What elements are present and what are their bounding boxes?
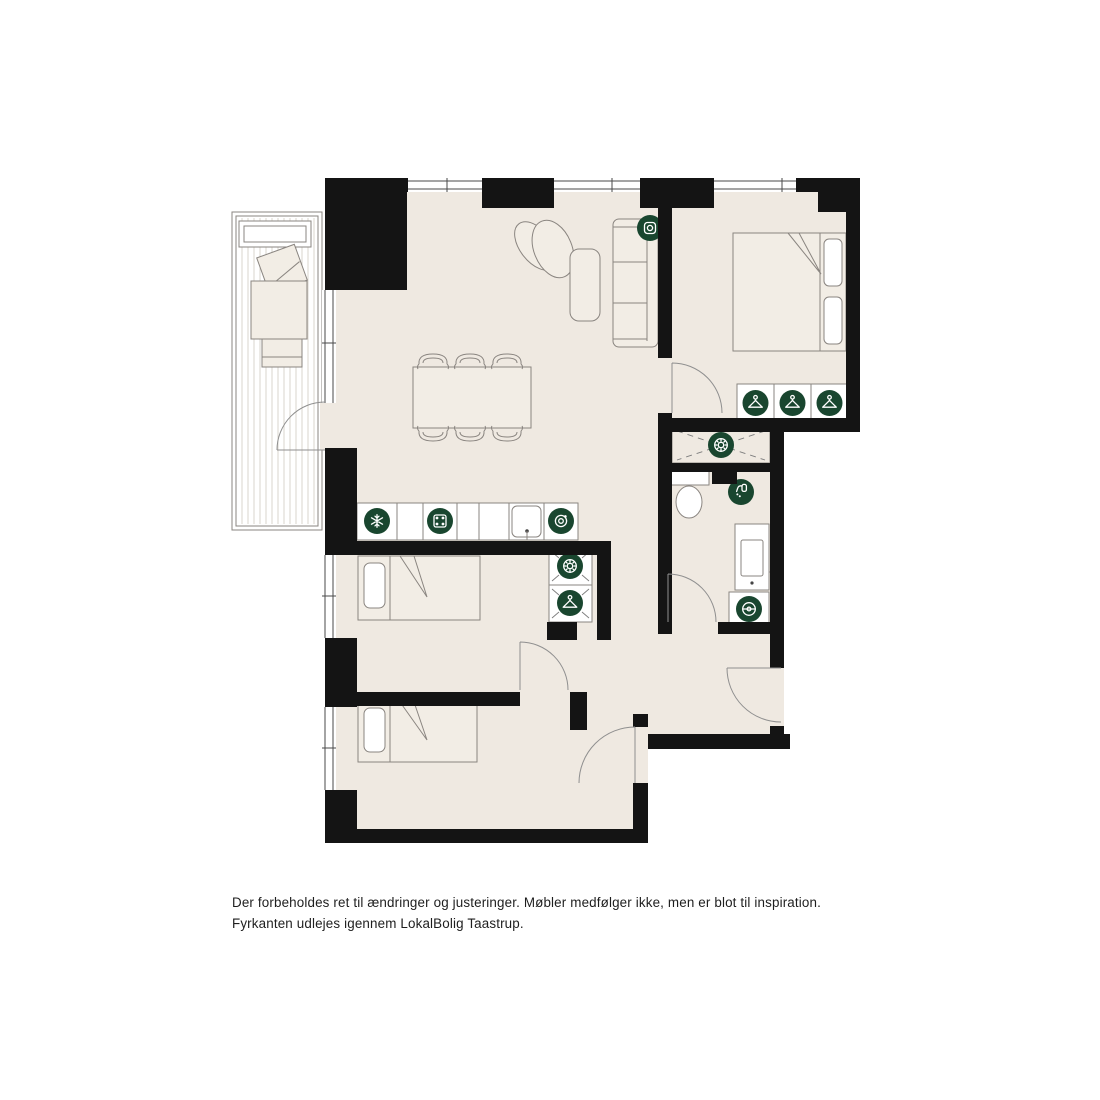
single-bed bbox=[358, 556, 480, 620]
wall bbox=[640, 178, 714, 208]
hanger-icon bbox=[780, 390, 806, 416]
window bbox=[322, 555, 336, 638]
hanger-icon bbox=[557, 590, 583, 616]
pillow bbox=[364, 708, 385, 752]
wall bbox=[325, 638, 357, 707]
bedroom-2 bbox=[358, 548, 592, 622]
wall bbox=[672, 418, 860, 432]
wall bbox=[570, 692, 587, 730]
disclaimer-line-1: Der forbeholdes ret til ændringer og jus… bbox=[232, 893, 821, 914]
wall bbox=[658, 622, 672, 634]
laundry-drum-icon bbox=[557, 553, 583, 579]
wall bbox=[482, 178, 554, 208]
hanger-icon bbox=[817, 390, 843, 416]
pillow bbox=[824, 239, 842, 286]
balcony bbox=[232, 212, 322, 530]
window bbox=[554, 178, 640, 192]
wall bbox=[547, 622, 577, 640]
pillow bbox=[824, 297, 842, 344]
stove-icon bbox=[427, 508, 453, 534]
kitchen bbox=[357, 503, 578, 540]
balcony-door-gap bbox=[320, 403, 334, 450]
hallway-floor-upper bbox=[611, 541, 658, 641]
disclaimer-text: Der forbeholdes ret til ændringer og jus… bbox=[232, 893, 821, 934]
washing-machine bbox=[729, 592, 769, 626]
wall bbox=[770, 432, 784, 668]
side-table bbox=[570, 249, 600, 321]
dining-table bbox=[413, 367, 531, 428]
wall bbox=[648, 734, 790, 749]
wall bbox=[633, 714, 648, 727]
window bbox=[322, 290, 336, 403]
wall bbox=[325, 541, 611, 555]
floor-plan-page: Der forbeholdes ret til ændringer og jus… bbox=[0, 0, 1100, 1100]
planter-box bbox=[239, 221, 311, 247]
kitchen-counter bbox=[357, 503, 578, 540]
wall bbox=[718, 622, 770, 634]
bathroom-vanity bbox=[735, 524, 774, 590]
bedroom-1-door-gap bbox=[658, 358, 672, 413]
disclaimer-line-2: Fyrkanten udlejes igennem LokalBolig Taa… bbox=[232, 914, 821, 935]
wall bbox=[658, 463, 770, 472]
washing-machine-icon bbox=[736, 596, 762, 622]
double-bed bbox=[733, 233, 846, 351]
balcony-table bbox=[251, 281, 307, 339]
dishwasher-icon bbox=[548, 508, 574, 534]
bedroom-1-wardrobe bbox=[737, 384, 848, 422]
wall bbox=[325, 448, 357, 541]
bedroom-2-closet bbox=[549, 548, 592, 622]
window bbox=[408, 178, 482, 192]
fridge-snowflake-icon bbox=[364, 508, 390, 534]
wall bbox=[325, 790, 357, 843]
floor-plan bbox=[0, 0, 1100, 1100]
bathroom-door-gap bbox=[672, 622, 718, 634]
wall bbox=[658, 192, 672, 358]
bedroom-2-door-gap bbox=[520, 692, 570, 706]
wall bbox=[658, 413, 672, 432]
wall bbox=[325, 178, 407, 290]
wall bbox=[597, 541, 611, 640]
entry-door-gap bbox=[770, 668, 784, 726]
wall bbox=[658, 432, 672, 622]
bedroom-3 bbox=[358, 702, 477, 762]
single-bed bbox=[358, 702, 477, 762]
pillow bbox=[364, 563, 385, 608]
kitchen-sink bbox=[512, 506, 541, 540]
window bbox=[322, 707, 336, 790]
window bbox=[714, 178, 796, 192]
wall bbox=[846, 192, 860, 432]
hanger-icon bbox=[743, 390, 769, 416]
balcony-chair-bottom bbox=[262, 339, 302, 367]
wall bbox=[325, 829, 648, 843]
bedroom-1 bbox=[733, 233, 848, 422]
laundry-drum-icon bbox=[708, 432, 734, 458]
wall bbox=[796, 178, 860, 192]
wall bbox=[712, 472, 737, 484]
entry-floor bbox=[648, 634, 770, 734]
